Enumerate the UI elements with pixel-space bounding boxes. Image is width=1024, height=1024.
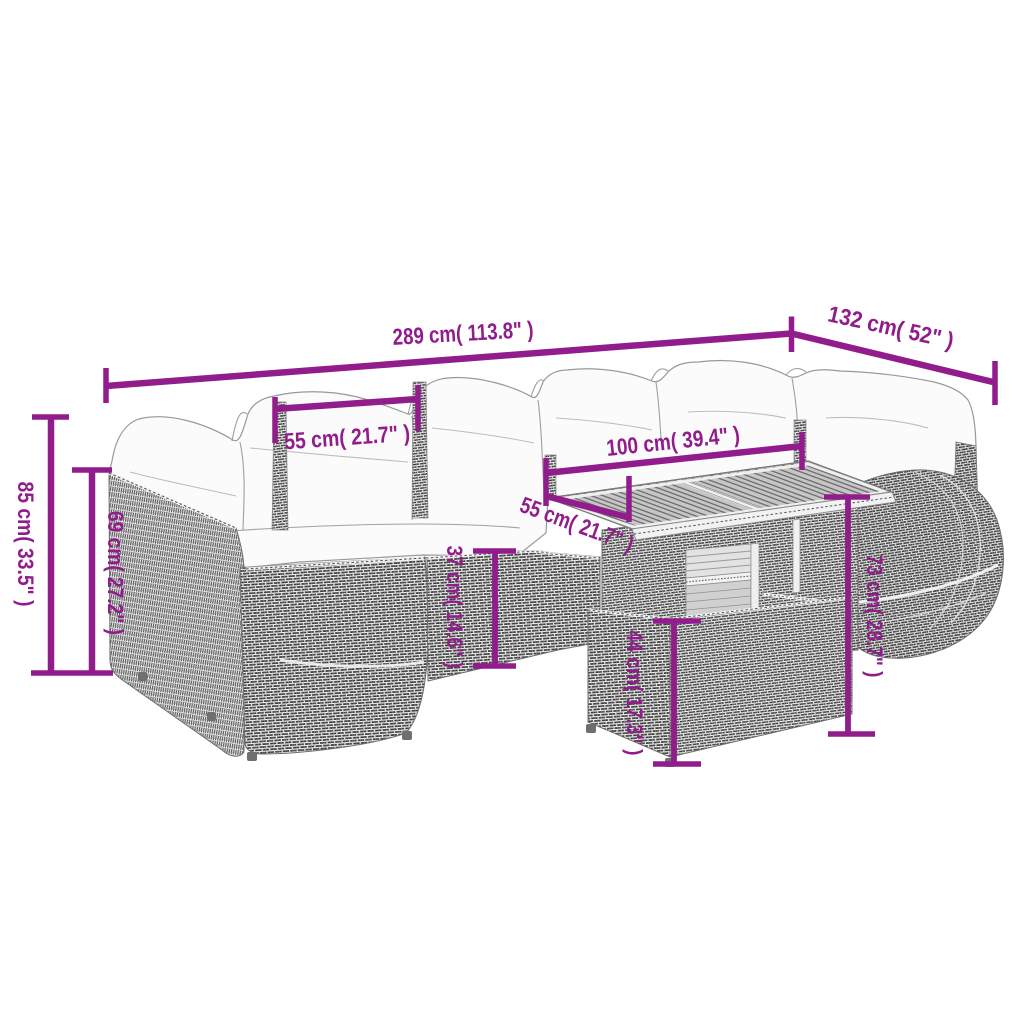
svg-text:69 cm( 27.2" ): 69 cm( 27.2" ): [103, 511, 128, 635]
svg-text:73 cm( 28.7" ): 73 cm( 28.7" ): [862, 555, 887, 678]
svg-text:85 cm( 33.5" ): 85 cm( 33.5" ): [13, 482, 38, 607]
svg-text:44 cm( 17.3" ): 44 cm( 17.3" ): [622, 631, 647, 756]
svg-text:37 cm( 14.6" ): 37 cm( 14.6" ): [442, 546, 467, 669]
